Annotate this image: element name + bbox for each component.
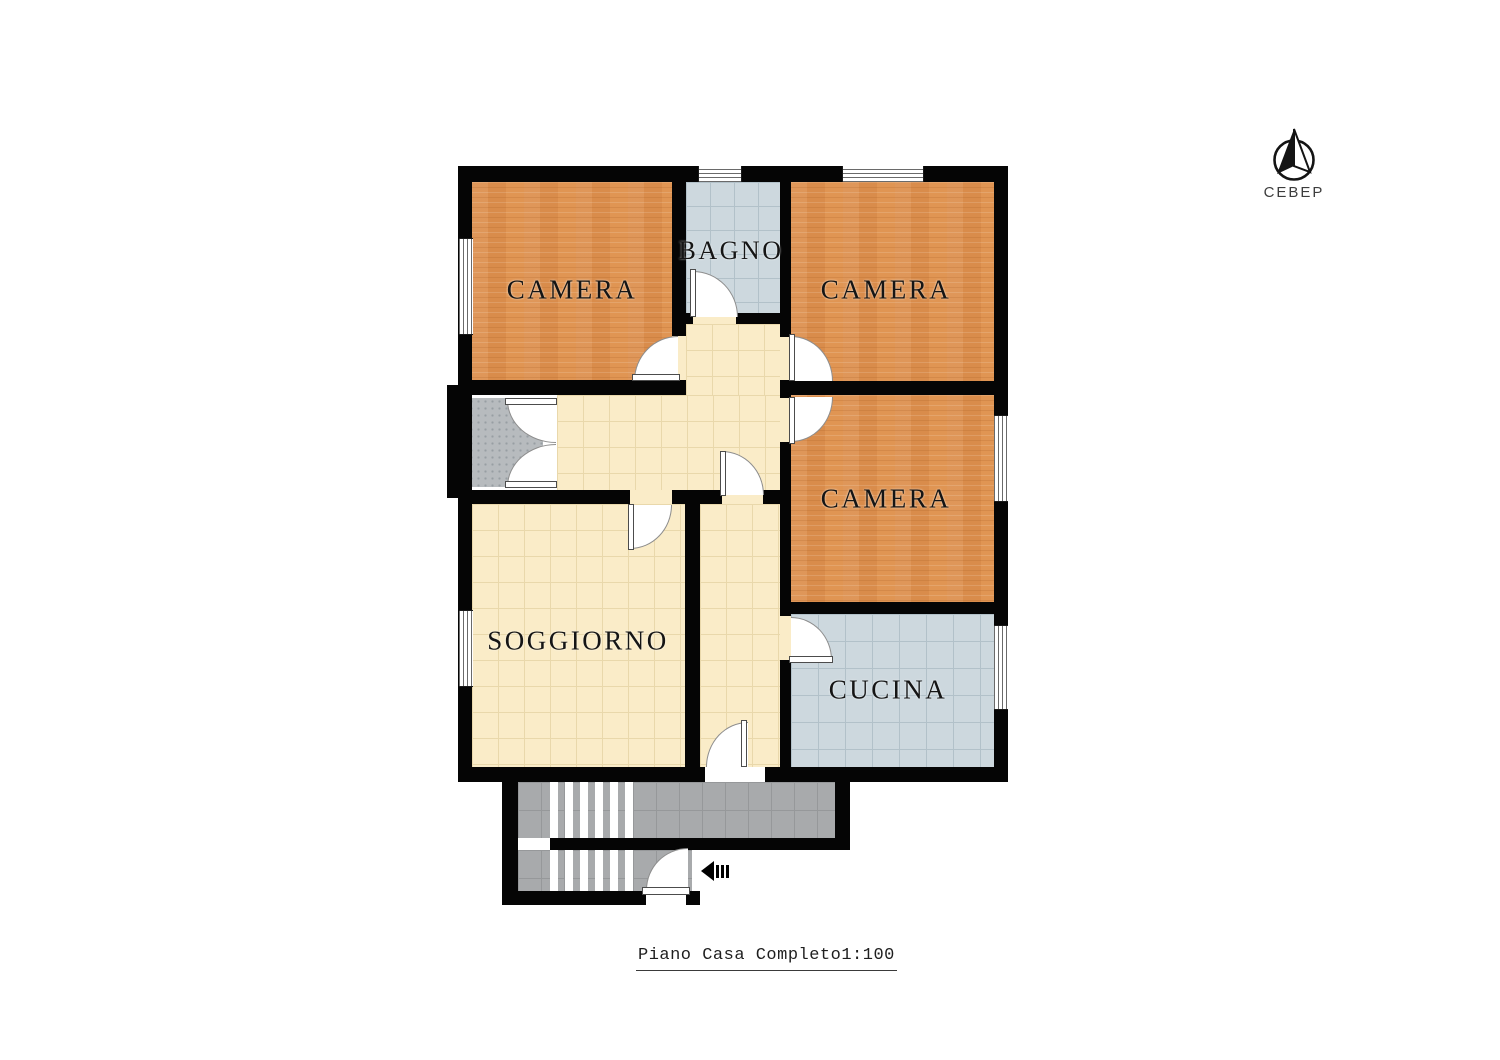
north-compass-icon — [1256, 121, 1332, 183]
compass-label: СЕВЕР — [1252, 184, 1336, 201]
room-label-camera-middle-right: CAMERA — [821, 484, 952, 515]
stair-tread — [580, 850, 588, 891]
wall-porch-outer — [447, 385, 461, 498]
caption-title: Piano Casa Completo — [638, 946, 841, 965]
stair-tread — [565, 782, 573, 838]
wall-camera-tr-bottom — [780, 381, 1008, 395]
room-label-camera-top-right: CAMERA — [821, 275, 952, 306]
door-leaf-camera-tl — [632, 374, 680, 381]
caption-scale: 1:100 — [841, 946, 895, 965]
wall-stairs-left — [502, 782, 518, 905]
room-label-camera-top-left: CAMERA — [507, 275, 638, 306]
wall-stairs-right — [835, 782, 850, 850]
door-leaf-exit — [741, 720, 747, 767]
floorplan-canvas: CAMERA BAGNO CAMERA CAMERA SOGGIORNO CUC… — [0, 0, 1500, 1060]
door-leaf-corridor — [720, 451, 726, 496]
opening-cucina — [780, 616, 791, 660]
opening-exit-stairs — [705, 767, 765, 782]
window-left-soggiorno — [459, 610, 473, 687]
stair-tread — [610, 782, 618, 838]
stair-tread — [595, 782, 603, 838]
door-leaf-soggiorno — [628, 504, 634, 550]
wall-stairs-divider — [550, 838, 835, 850]
stair-tread — [550, 850, 558, 891]
opening-soggiorno — [630, 490, 672, 504]
stair-tread — [610, 850, 618, 891]
room-label-soggiorno: SOGGIORNO — [487, 626, 669, 657]
room-label-cucina: CUCINA — [829, 675, 948, 706]
stair-tread — [625, 850, 633, 891]
door-leaf-cucina — [789, 656, 833, 663]
stair-tread — [550, 782, 558, 838]
door-leaf-camera-tr — [789, 334, 795, 381]
window-top-bagno — [698, 166, 742, 182]
wall-camera-mid-bottom — [791, 602, 1008, 614]
wall-camera-tl-bottom — [458, 380, 686, 395]
door-leaf-bagno — [690, 269, 696, 317]
window-top-camera-tr — [842, 166, 924, 182]
stair-tread — [580, 782, 588, 838]
door-leaf-camera-mid — [789, 397, 795, 444]
window-right-camera-mid — [994, 415, 1008, 502]
wall-soggiorno-right — [685, 504, 700, 767]
door-leaf-stair-exit — [642, 887, 690, 895]
stair-tread — [595, 850, 603, 891]
entrance-arrow-icon — [701, 861, 729, 881]
plan-caption: Piano Casa Completo1:100 — [636, 946, 897, 971]
door-leaf-entry-top — [505, 398, 557, 405]
north-compass: СЕВЕР — [1252, 121, 1336, 201]
window-left-camera-tl — [459, 238, 473, 335]
corridor-floor-upper — [686, 324, 780, 395]
wall-stairs-bottom — [502, 891, 646, 905]
room-label-bagno: BAGNO — [679, 236, 784, 266]
stair-tread — [625, 782, 633, 838]
door-leaf-entry-bottom — [505, 481, 557, 488]
stair-tread — [565, 850, 573, 891]
window-right-cucina — [994, 625, 1008, 710]
